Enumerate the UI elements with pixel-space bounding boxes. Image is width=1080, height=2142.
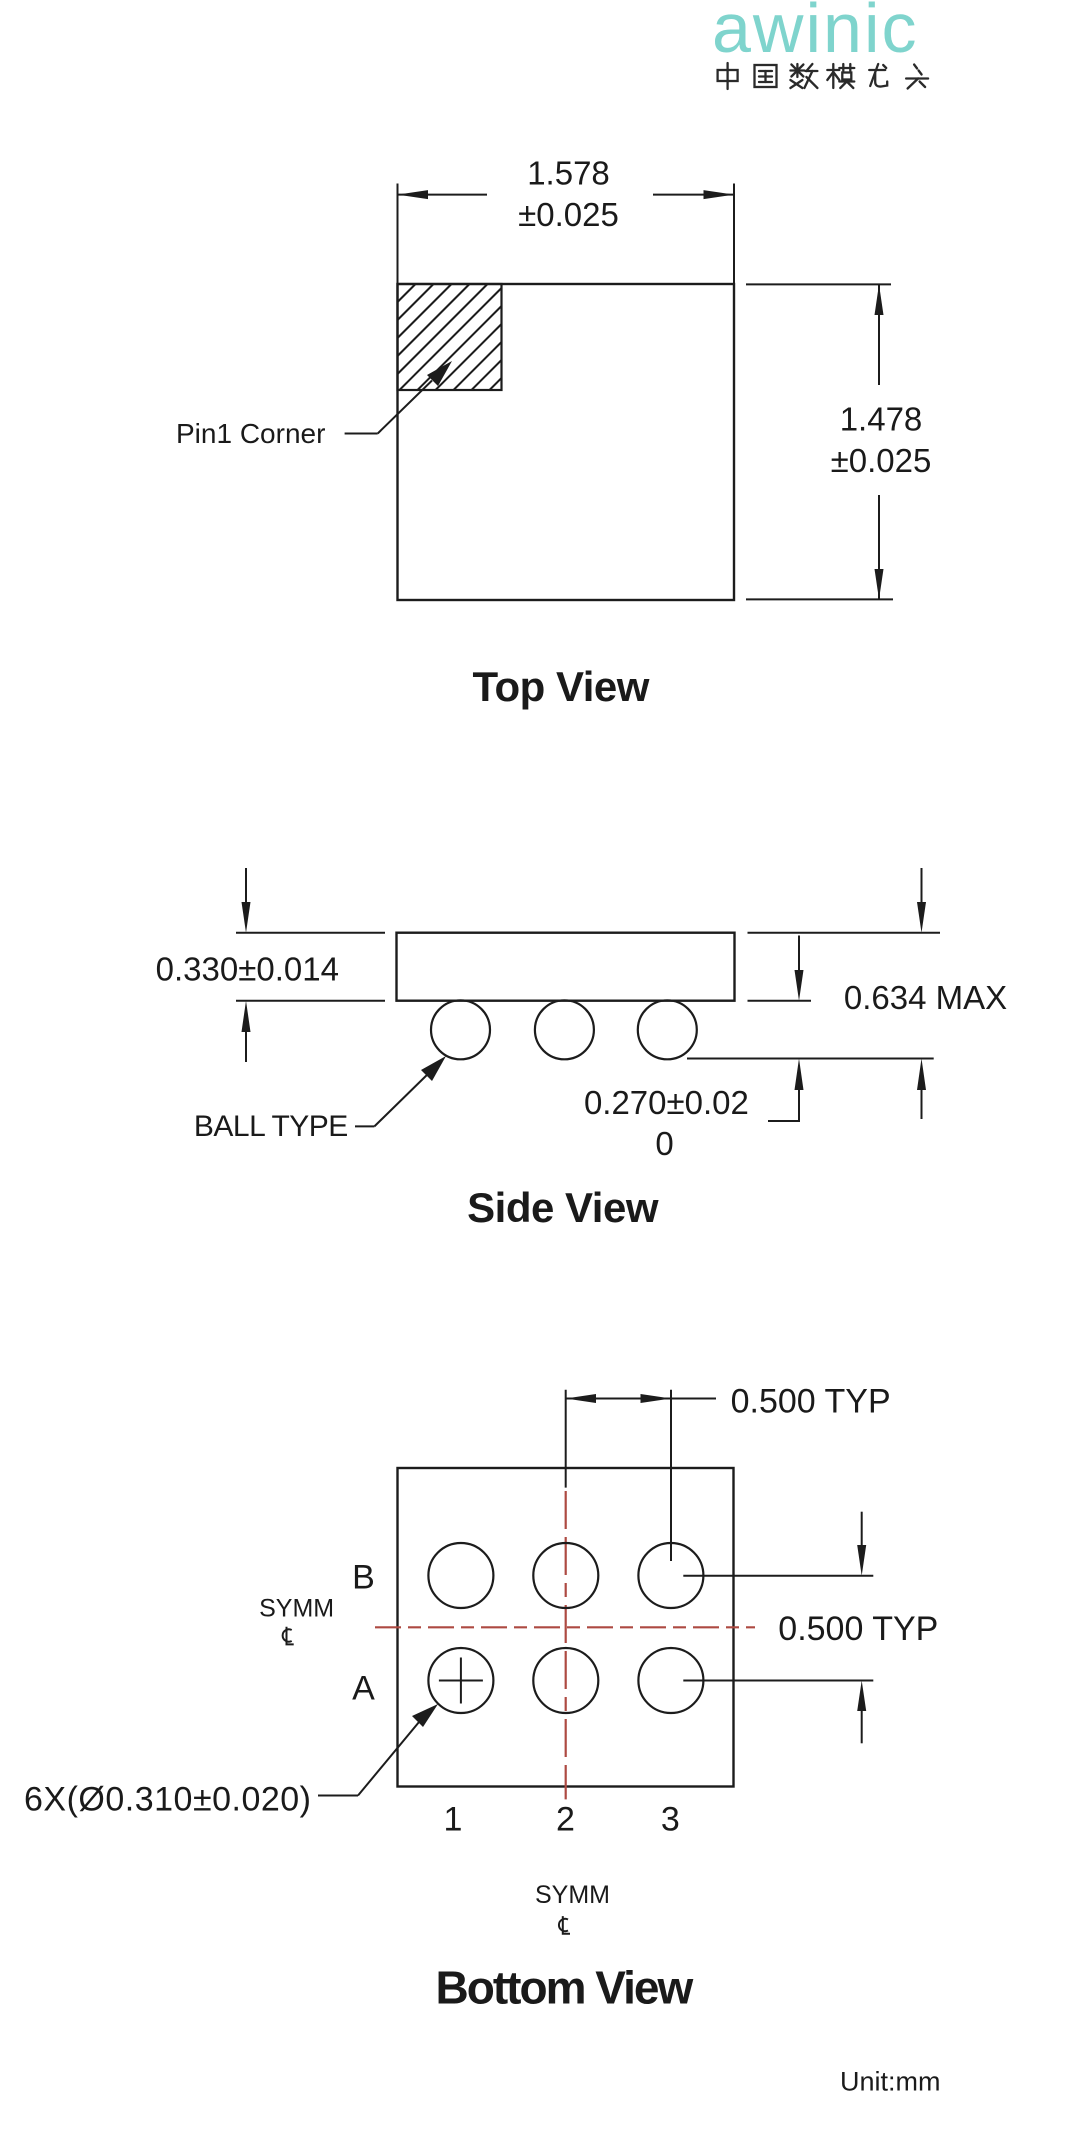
svg-text:0: 0: [655, 1125, 673, 1162]
svg-text:awinic: awinic: [712, 0, 919, 67]
svg-text:A: A: [352, 1670, 375, 1708]
svg-text:Pin1 Corner: Pin1 Corner: [176, 418, 325, 449]
svg-text:1.578: 1.578: [527, 155, 610, 192]
svg-text:0.270±0.02: 0.270±0.02: [584, 1084, 749, 1121]
svg-text:±0.025: ±0.025: [831, 442, 932, 479]
svg-text:1: 1: [444, 1801, 463, 1839]
svg-text:BALL TYPE: BALL TYPE: [194, 1110, 348, 1143]
svg-text:Side View: Side View: [467, 1184, 659, 1231]
svg-text:2: 2: [556, 1801, 575, 1839]
svg-text:1.478: 1.478: [840, 401, 923, 438]
svg-text:B: B: [352, 1559, 375, 1597]
svg-text:6X(Ø0.310±0.020): 6X(Ø0.310±0.020): [24, 1781, 312, 1819]
svg-text:±0.025: ±0.025: [518, 196, 619, 233]
svg-text:0.500 TYP: 0.500 TYP: [778, 1610, 938, 1648]
svg-text:0.634 MAX: 0.634 MAX: [844, 979, 1007, 1016]
svg-text:Bottom View: Bottom View: [436, 1962, 694, 2014]
svg-text:0.500 TYP: 0.500 TYP: [731, 1383, 891, 1421]
svg-text:0.330±0.014: 0.330±0.014: [156, 950, 339, 987]
svg-text:SYMM: SYMM: [259, 1595, 334, 1623]
svg-text:SYMM: SYMM: [535, 1881, 610, 1909]
svg-text:Unit:mm: Unit:mm: [840, 2066, 941, 2096]
svg-text:Top View: Top View: [472, 663, 649, 710]
svg-text:3: 3: [661, 1801, 680, 1839]
